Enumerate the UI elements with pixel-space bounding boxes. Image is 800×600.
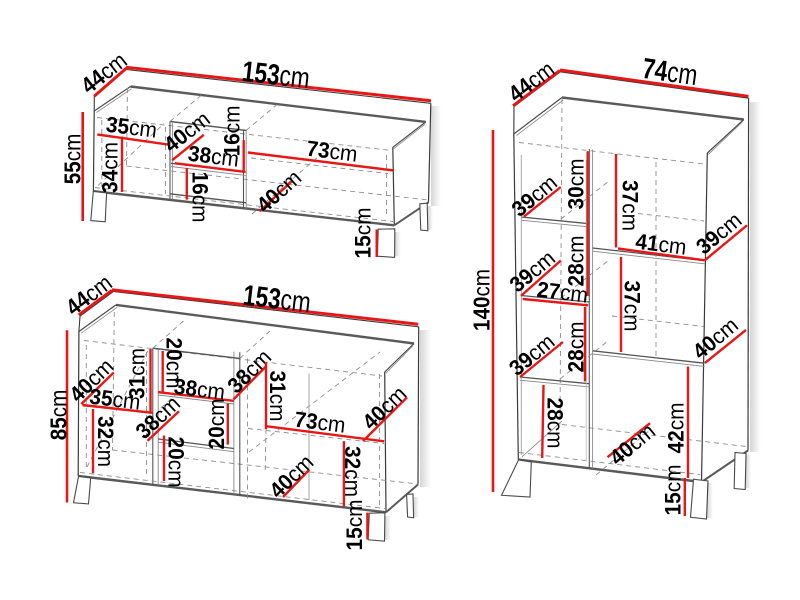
svg-text:16cm: 16cm — [187, 171, 212, 222]
svg-text:85cm: 85cm — [45, 390, 71, 441]
svg-text:28cm: 28cm — [542, 397, 567, 448]
svg-text:55cm: 55cm — [59, 134, 85, 185]
svg-text:16cm: 16cm — [220, 105, 245, 156]
svg-text:31cm: 31cm — [125, 348, 150, 399]
svg-text:15cm: 15cm — [343, 499, 368, 550]
svg-text:20cm: 20cm — [163, 436, 188, 487]
svg-text:32cm: 32cm — [340, 446, 365, 497]
svg-text:28cm: 28cm — [564, 321, 589, 372]
svg-text:15cm: 15cm — [351, 207, 376, 258]
svg-text:15cm: 15cm — [661, 464, 686, 515]
svg-text:31cm: 31cm — [265, 370, 290, 421]
svg-text:140cm: 140cm — [468, 269, 494, 331]
svg-text:37cm: 37cm — [619, 280, 644, 331]
svg-text:30cm: 30cm — [564, 158, 589, 209]
svg-text:34cm: 34cm — [98, 142, 123, 193]
svg-text:28cm: 28cm — [564, 235, 589, 286]
svg-text:32cm: 32cm — [93, 416, 118, 467]
svg-text:20cm: 20cm — [205, 398, 230, 449]
svg-text:37cm: 37cm — [617, 180, 642, 231]
svg-text:42cm: 42cm — [664, 402, 689, 453]
